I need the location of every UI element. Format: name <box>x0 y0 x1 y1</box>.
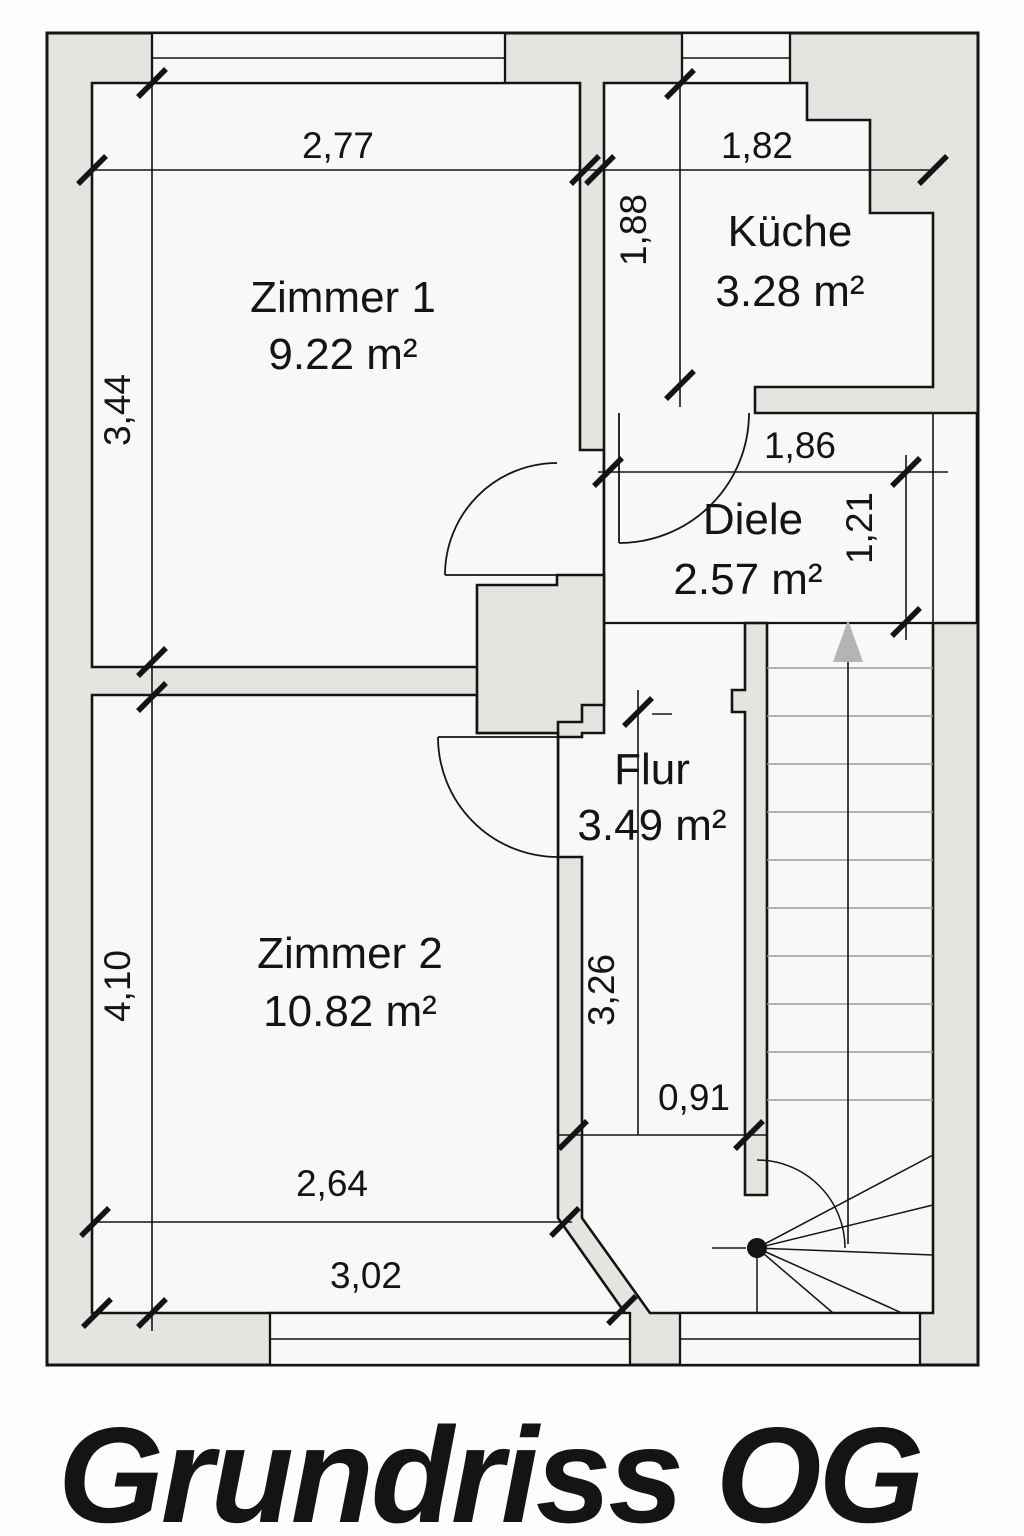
room-area-zimmer2: 10.82 m² <box>263 987 437 1036</box>
dim-diele-depth: 1,21 <box>839 492 880 564</box>
room-label-kueche: Küche <box>728 207 853 256</box>
dim-zimmer1-depth: 3,44 <box>97 374 138 446</box>
room-area-kueche: 3.28 m² <box>715 267 864 316</box>
floor-plan-svg: 2,77 1,82 1,88 3,44 1,86 1,21 4,10 3,26 … <box>0 0 1024 1536</box>
room-label-zimmer2: Zimmer 2 <box>257 929 443 978</box>
room-label-diele: Diele <box>703 495 803 544</box>
dim-bottom-width: 3,02 <box>330 1255 402 1296</box>
dim-zimmer1-width: 2,77 <box>302 125 374 166</box>
room-label-flur: Flur <box>614 745 690 794</box>
floor-plan-page: 2,77 1,82 1,88 3,44 1,86 1,21 4,10 3,26 … <box>0 0 1024 1536</box>
page-title: Grundriss OG <box>58 1399 921 1536</box>
room-area-diele: 2.57 m² <box>673 555 822 604</box>
dim-kueche-depth: 1,88 <box>613 194 654 266</box>
dim-kueche-width: 1,82 <box>721 125 793 166</box>
stair-newel-post <box>747 1238 767 1258</box>
dim-zimmer2-depth: 4,10 <box>97 950 138 1022</box>
dim-diele-width: 1,86 <box>764 425 836 466</box>
dim-flur-depth: 3,26 <box>581 954 622 1026</box>
room-area-flur: 3.49 m² <box>577 801 726 850</box>
room-area-zimmer1: 9.22 m² <box>268 330 417 379</box>
dim-flur-width: 0,91 <box>658 1077 730 1118</box>
room-label-zimmer1: Zimmer 1 <box>250 273 436 322</box>
dim-zimmer2-width: 2,64 <box>296 1163 368 1204</box>
